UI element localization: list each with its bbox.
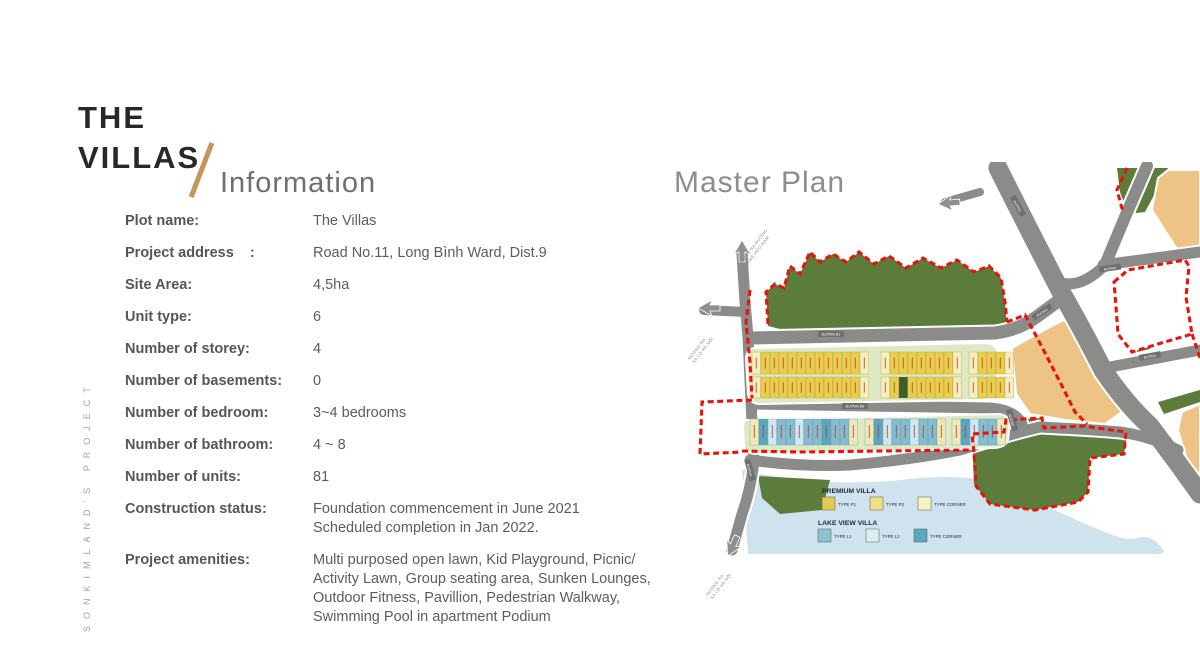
villa-unit-mark <box>781 425 782 438</box>
villa-unit-mark <box>765 358 766 369</box>
villa-unit-mark <box>869 425 870 438</box>
info-table: Plot name:The VillasProject address :Roa… <box>125 212 695 640</box>
info-value: 4 ~ 8 <box>313 436 695 455</box>
villa-unit-mark <box>864 382 865 393</box>
legend-swatch <box>918 497 931 510</box>
title-line-2: VILLAS <box>78 138 200 178</box>
villa-unit-mark <box>948 358 949 369</box>
villa-unit-mark <box>792 382 793 393</box>
legend-label: TYPE CORNER <box>930 534 962 539</box>
info-label: Plot name: <box>125 212 313 231</box>
villa-unit-mark <box>912 382 913 393</box>
villa-unit-mark <box>844 425 845 438</box>
villa-unit-mark <box>828 358 829 369</box>
villa-unit-mark <box>846 382 847 393</box>
villa-unit-mark <box>939 382 940 393</box>
villa-unit-mark <box>905 425 906 438</box>
villa-unit-mark <box>1009 382 1010 393</box>
villa-unit-mark <box>799 425 800 438</box>
page-title: THE VILLAS <box>78 98 200 178</box>
villa-unit-mark <box>772 425 773 438</box>
legend-label: TYPE P1 <box>838 502 857 507</box>
legend-label: TYPE CORNER <box>934 502 966 507</box>
villa-unit-mark <box>819 358 820 369</box>
info-label: Construction status: <box>125 500 313 538</box>
villa-unit-mark <box>930 382 931 393</box>
svg-text:ĐƯỜNG B8: ĐƯỜNG B8 <box>846 404 865 409</box>
villa-unit <box>899 377 908 398</box>
villa-unit-mark <box>1000 358 1001 369</box>
direction-label: HƯỚNG RA XA LỘ HÀ NỘI <box>687 333 715 364</box>
main-park <box>766 252 1007 331</box>
villa-unit-mark <box>837 382 838 393</box>
info-row: Construction status:Foundation commencem… <box>125 500 695 538</box>
legend-title-premium: PREMIUM VILLA <box>822 488 876 495</box>
villa-unit-mark <box>973 382 974 393</box>
villa-unit-mark <box>923 425 924 438</box>
villa-unit-mark <box>1001 425 1002 438</box>
legend-label: TYPE L2 <box>882 534 900 539</box>
villa-unit-mark <box>885 382 886 393</box>
title-line-1: THE <box>78 98 200 138</box>
legend-swatch <box>822 497 835 510</box>
info-value: The Villas <box>313 212 695 231</box>
villa-unit-mark <box>808 425 809 438</box>
villa-unit-mark <box>1009 358 1010 369</box>
villa-unit-mark <box>957 358 958 369</box>
villa-unit-mark <box>853 425 854 438</box>
villa-unit-mark <box>801 382 802 393</box>
info-label: Number of storey: <box>125 340 313 359</box>
legend-swatch <box>866 529 879 542</box>
villa-unit-mark <box>894 358 895 369</box>
villa-unit-mark <box>774 382 775 393</box>
villa-unit-mark <box>756 382 757 393</box>
info-label: Project amenities: <box>125 551 313 627</box>
vertical-brand-text: SONKIMLAND'S PROJECT <box>82 362 92 632</box>
villa-unit-mark <box>914 425 915 438</box>
info-value: 4 <box>313 340 695 359</box>
villa-unit-mark <box>932 425 933 438</box>
info-value: 6 <box>313 308 695 327</box>
villa-unit-mark <box>774 358 775 369</box>
site-map: ĐƯỜNG B1 ĐƯỜNG B8 ĐƯỜNG ĐƯỜNG ĐƯỜNG ĐƯỜN… <box>680 162 1200 662</box>
info-value: Multi purposed open lawn, Kid Playground… <box>313 551 695 627</box>
info-value: 0 <box>313 372 695 391</box>
villa-unit-mark <box>939 358 940 369</box>
villa-unit-mark <box>921 382 922 393</box>
villa-unit-mark <box>894 382 895 393</box>
info-value: Foundation commencement in June 2021 Sch… <box>313 500 695 538</box>
info-value: 4,5ha <box>313 276 695 295</box>
villa-unit-mark <box>973 358 974 369</box>
villa-unit-mark <box>921 358 922 369</box>
villa-unit-mark <box>763 425 764 438</box>
villa-unit-mark <box>817 425 818 438</box>
villa-unit-mark <box>835 425 836 438</box>
villa-unit-mark <box>982 382 983 393</box>
villa-unit-mark <box>965 425 966 438</box>
villa-unit-mark <box>903 358 904 369</box>
villa-unit-mark <box>941 425 942 438</box>
section-subtitle: Information <box>220 167 376 200</box>
villa-unit-mark <box>956 425 957 438</box>
villa-unit-mark <box>754 425 755 438</box>
villa-unit-mark <box>810 358 811 369</box>
legend-label: TYPE P2 <box>886 502 905 507</box>
villa-unit-mark <box>846 358 847 369</box>
villa-unit-mark <box>756 358 757 369</box>
villa-unit-mark <box>837 358 838 369</box>
villa-strip-premium <box>746 343 1014 404</box>
info-label: Unit type: <box>125 308 313 327</box>
orange-top-right <box>1152 170 1200 258</box>
road-label-pill: ĐƯỜNG B1 <box>818 331 844 337</box>
villa-unit-mark <box>864 358 865 369</box>
villa-unit-mark <box>974 425 975 438</box>
svg-text:ĐƯỜNG B1: ĐƯỜNG B1 <box>822 332 841 337</box>
villa-unit-mark <box>878 425 879 438</box>
road-label-pill: ĐƯỜNG B8 <box>842 403 868 409</box>
legend-swatch <box>818 529 831 542</box>
villa-unit-mark <box>765 382 766 393</box>
info-row: Plot name:The Villas <box>125 212 695 231</box>
info-row: Unit type:6 <box>125 308 695 327</box>
info-row: Number of basements:0 <box>125 372 695 391</box>
villa-strip-lakeview <box>743 414 1010 454</box>
info-value: Road No.11, Long Bình Ward, Dist.9 <box>313 244 695 263</box>
villa-unit-mark <box>948 382 949 393</box>
villa-unit-mark <box>828 382 829 393</box>
white-block-dashed <box>1114 260 1192 352</box>
info-row: Number of units:81 <box>125 468 695 487</box>
legend-swatch <box>870 497 883 510</box>
villa-unit-mark <box>810 382 811 393</box>
villa-unit-mark <box>783 358 784 369</box>
villa-unit-mark <box>896 425 897 438</box>
info-row: Project address :Road No.11, Long Bình W… <box>125 244 695 263</box>
info-row: Project amenities:Multi purposed open la… <box>125 551 695 627</box>
info-label: Number of basements: <box>125 372 313 391</box>
villa-unit-mark <box>792 358 793 369</box>
info-label: Site Area: <box>125 276 313 295</box>
villa-unit-mark <box>912 358 913 369</box>
info-row: Number of bedroom:3~4 bedrooms <box>125 404 695 423</box>
villa-unit-mark <box>991 382 992 393</box>
villa-unit-mark <box>826 425 827 438</box>
villa-unit-mark <box>983 425 984 438</box>
villa-unit-mark <box>930 358 931 369</box>
legend-title-lakeview: LAKE VIEW VILLA <box>818 520 877 527</box>
info-value: 3~4 bedrooms <box>313 404 695 423</box>
info-row: Site Area:4,5ha <box>125 276 695 295</box>
villa-unit-mark <box>819 382 820 393</box>
villa-unit-mark <box>790 425 791 438</box>
info-row: Number of storey:4 <box>125 340 695 359</box>
villa-unit-mark <box>1000 382 1001 393</box>
info-label: Number of bedroom: <box>125 404 313 423</box>
villa-unit-mark <box>887 425 888 438</box>
info-value: 81 <box>313 468 695 487</box>
legend-label: TYPE L1 <box>834 534 852 539</box>
villa-unit-mark <box>957 382 958 393</box>
villa-unit-mark <box>982 358 983 369</box>
info-row: Number of bathroom:4 ~ 8 <box>125 436 695 455</box>
villa-unit-mark <box>783 382 784 393</box>
info-label: Number of units: <box>125 468 313 487</box>
info-label: Project address : <box>125 244 313 263</box>
info-label: Number of bathroom: <box>125 436 313 455</box>
villa-unit-mark <box>991 358 992 369</box>
villa-unit-mark <box>855 358 856 369</box>
villa-unit-mark <box>855 382 856 393</box>
legend-swatch <box>914 529 927 542</box>
direction-label: HƯỚNG RA XA LỘ HÀ NỘI <box>705 569 733 600</box>
villa-unit-mark <box>801 358 802 369</box>
slide: SONKIMLAND'S PROJECT THE VILLAS Informat… <box>0 0 1200 667</box>
villa-unit-mark <box>885 358 886 369</box>
